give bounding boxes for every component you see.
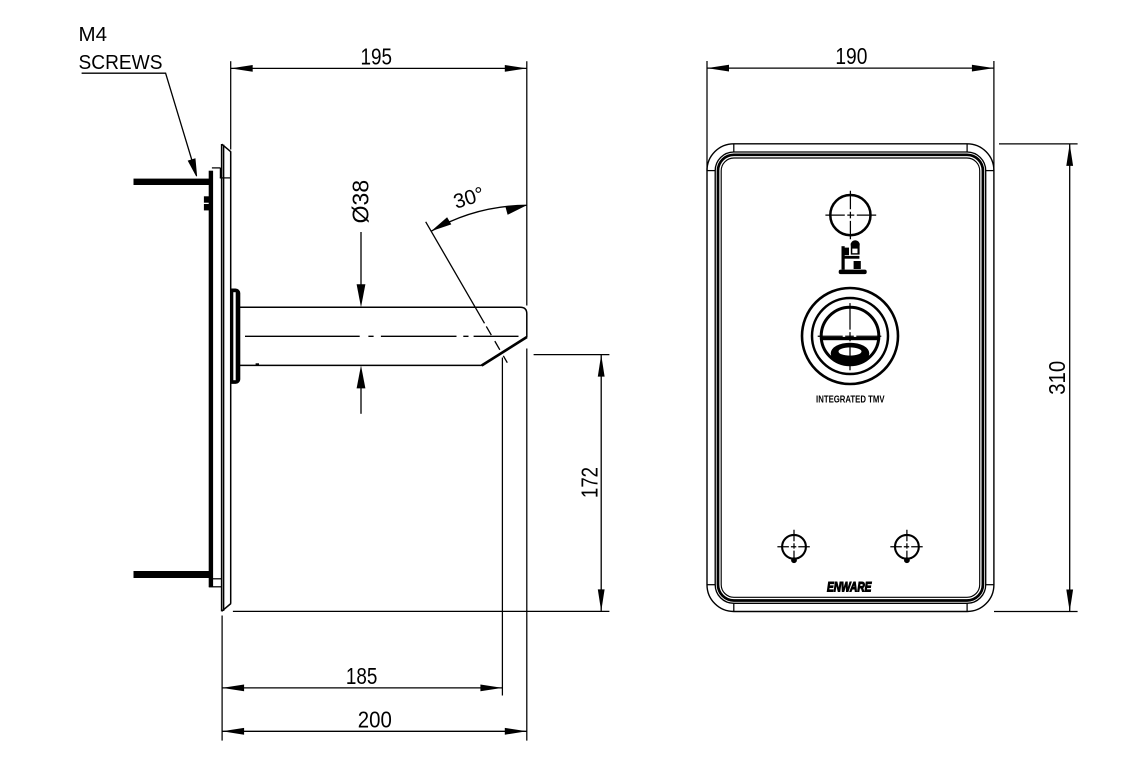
svg-text:M4: M4 — [79, 23, 107, 46]
svg-text:195: 195 — [361, 43, 393, 69]
svg-text:Ø38: Ø38 — [347, 180, 373, 223]
svg-text:INTEGRATED TMV: INTEGRATED TMV — [816, 395, 885, 406]
svg-text:310: 310 — [1044, 361, 1070, 395]
svg-text:172: 172 — [576, 467, 602, 498]
svg-text:ENWARE: ENWARE — [827, 580, 872, 595]
svg-text:200: 200 — [358, 706, 392, 732]
svg-text:190: 190 — [835, 43, 867, 69]
svg-text:SCREWS: SCREWS — [79, 51, 163, 74]
svg-text:185: 185 — [346, 663, 378, 689]
